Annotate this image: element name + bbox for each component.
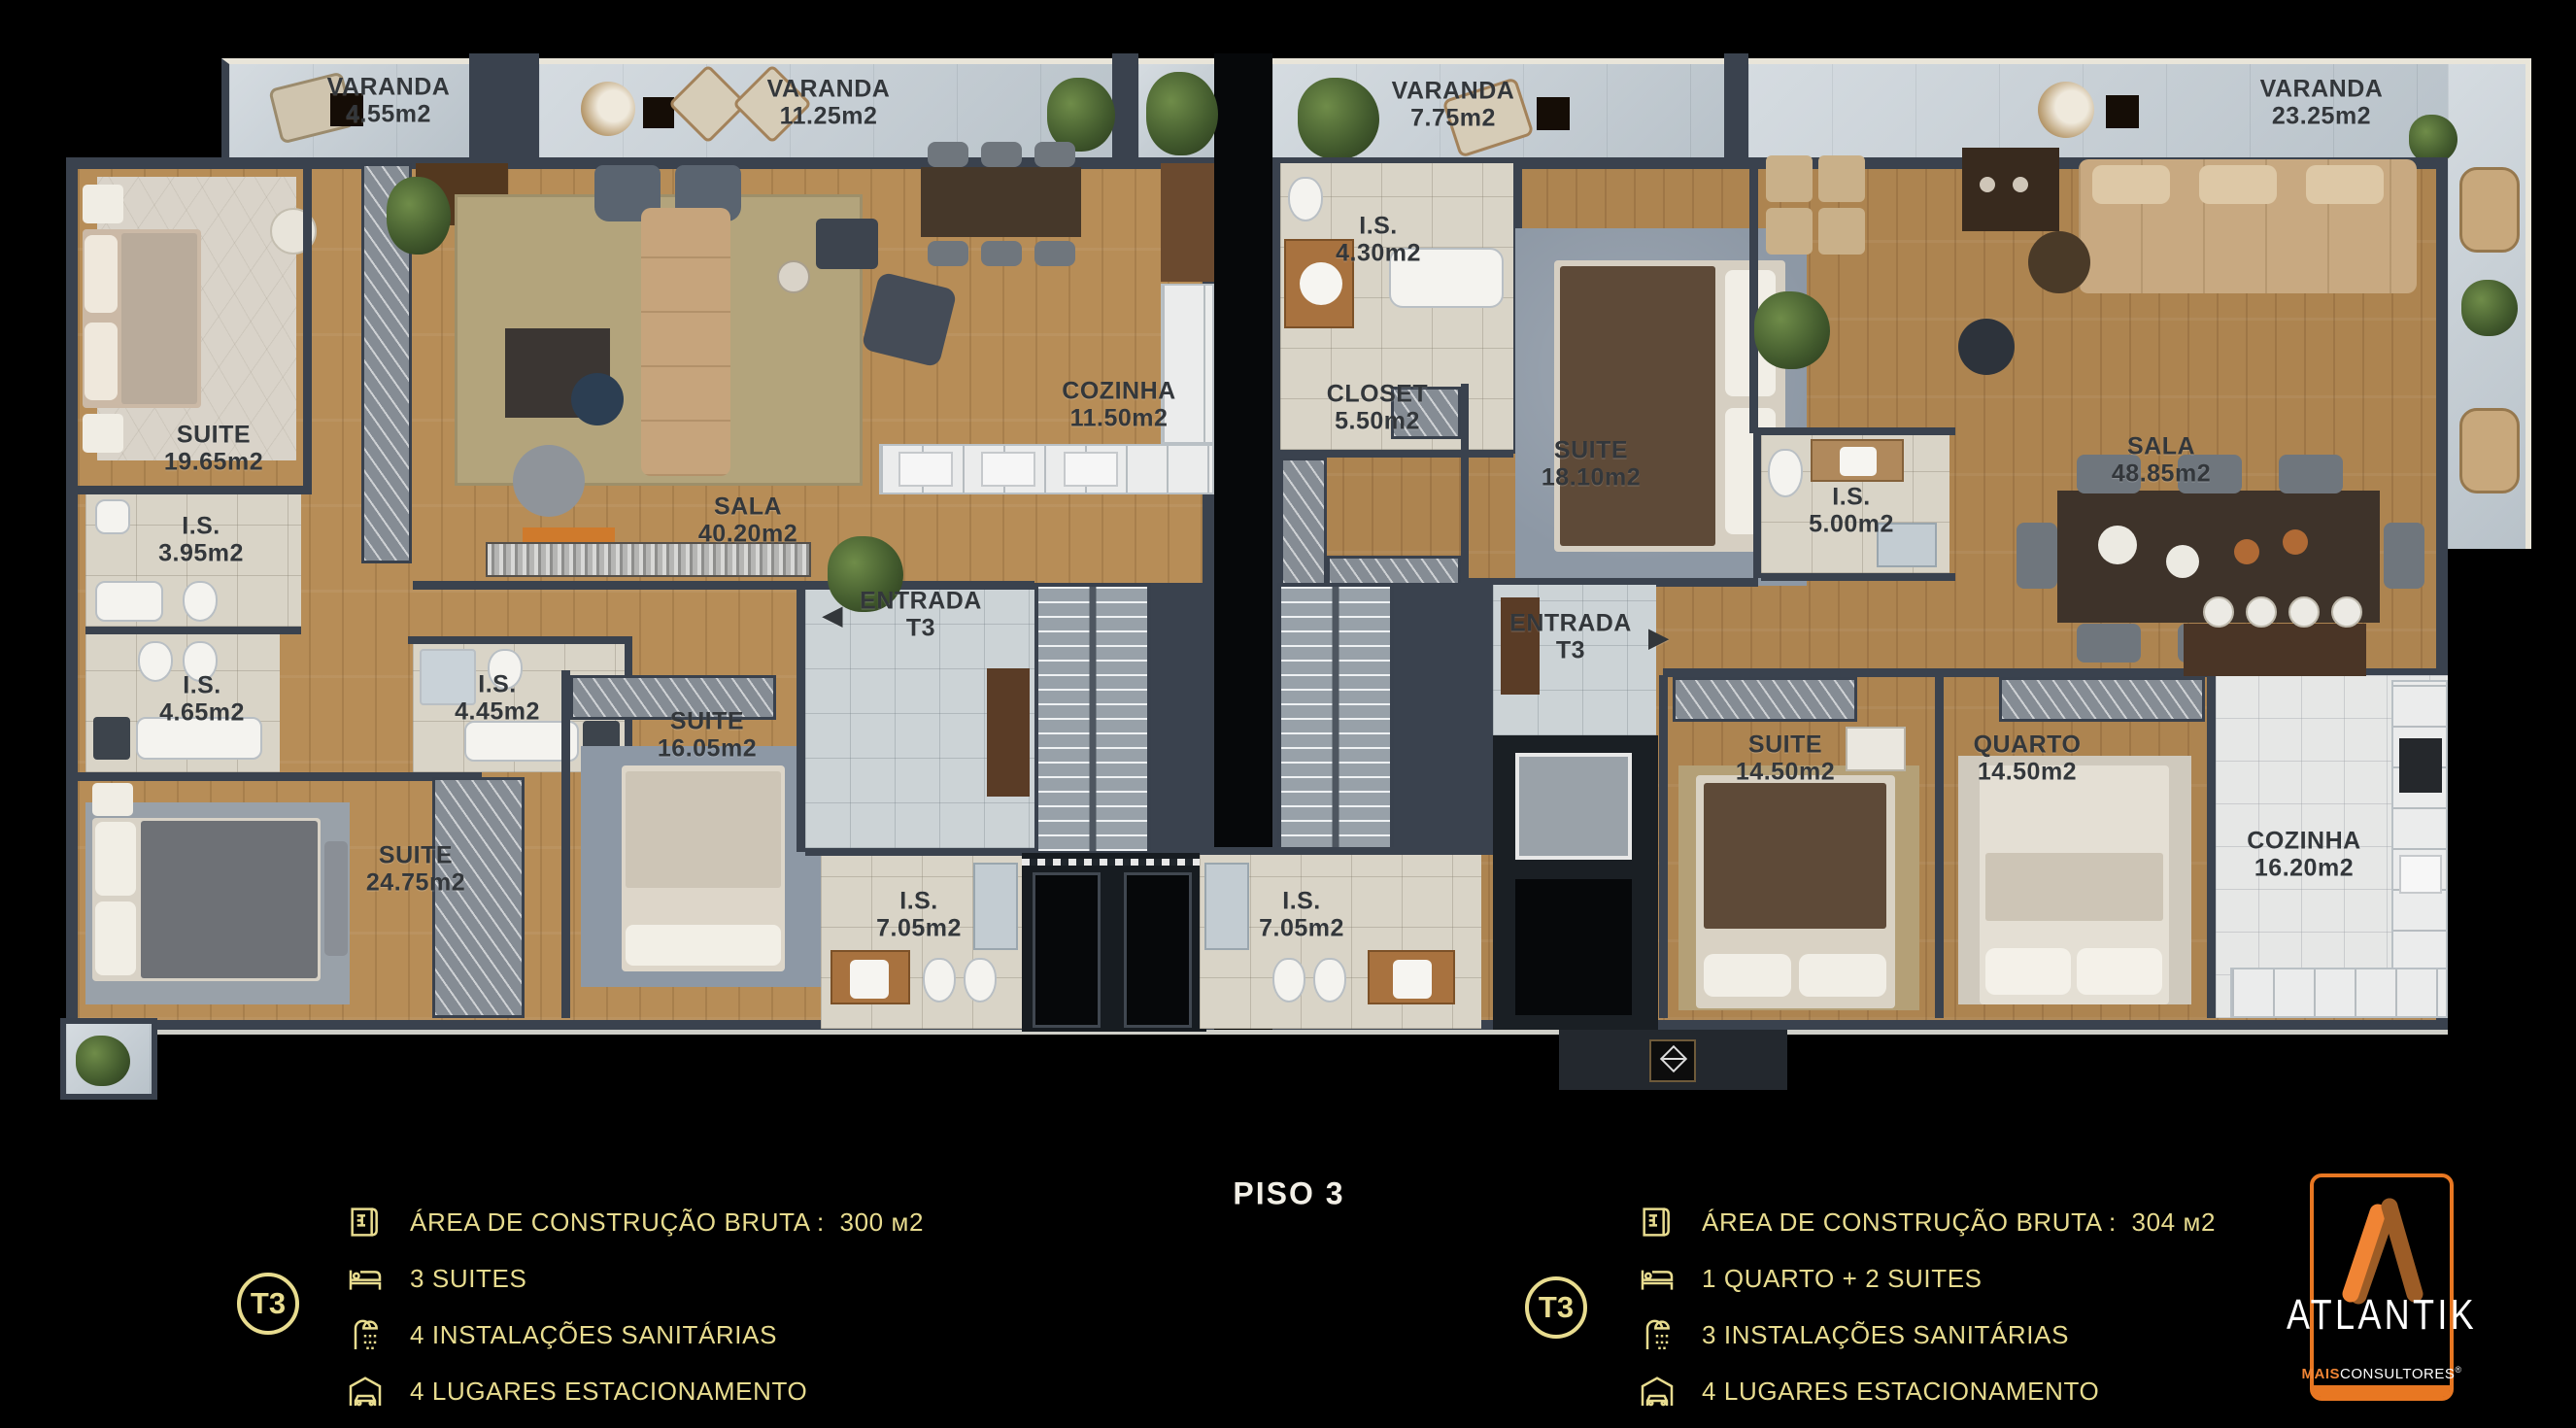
room-area: T3 (1556, 637, 1585, 664)
room-name: SALA (714, 494, 782, 522)
blanket (1704, 783, 1886, 929)
stool (2288, 596, 2320, 628)
vanity (1811, 439, 1904, 482)
wall (1151, 583, 1214, 860)
legend-right: ÁREA DE CONSTRUÇÃO BRUTA : 304 м2 1 QUAR… (1638, 1201, 2216, 1412)
room-area: 11.25m2 (780, 103, 878, 130)
pillow (1985, 948, 2071, 995)
legend-row-sanitary: 4 INSTALAÇÕES SANITÁRIAS (346, 1313, 924, 1356)
laundry-unit (93, 717, 130, 760)
atlantik-a-icon (2329, 1191, 2434, 1308)
room-area: 24.75m2 (366, 869, 465, 897)
pillow (95, 901, 136, 975)
room-name: ENTRADA (860, 589, 982, 616)
blueprint-icon (1638, 1203, 1677, 1241)
room-area: 4.55m2 (346, 101, 431, 128)
core-shaft (1214, 157, 1272, 855)
room-area: 48.85m2 (2112, 460, 2211, 488)
blanket (1560, 266, 1715, 546)
room-label-entrada-2: ▶ENTRADAT3 (1509, 611, 1632, 664)
sofa (641, 208, 730, 476)
room-area: T3 (906, 615, 935, 642)
wall (76, 772, 482, 781)
bidet (1313, 958, 1346, 1003)
room-label-is-705-left: I.S.7.05m2 (876, 889, 962, 942)
room-area: 19.65m2 (164, 449, 263, 476)
maisconsultores-label: MAISCONSULTORES® (2302, 1365, 2462, 1382)
room-area: 23.25m2 (2272, 103, 2371, 130)
room-area: 40.20m2 (698, 521, 797, 548)
shower-icon (346, 1315, 385, 1354)
room-area: 7.75m2 (1410, 105, 1496, 132)
pillow (95, 822, 136, 896)
room-area: 4.30m2 (1336, 240, 1421, 267)
pillow (2092, 165, 2170, 204)
room-label-suite-16: SUITE16.05m2 (658, 709, 757, 763)
room-area: 5.00m2 (1809, 511, 1894, 538)
bench (324, 841, 348, 956)
wall (1761, 573, 1955, 581)
wall (2207, 675, 2216, 1018)
bed (1696, 775, 1895, 1008)
sofa (2079, 159, 2417, 293)
dining-chair (1034, 241, 1075, 266)
room-label-varanda-2: VARANDA11.25m2 (767, 77, 891, 130)
elevator-shaft (1515, 879, 1632, 1015)
basin (850, 960, 889, 999)
room-area: 5.50m2 (1335, 408, 1420, 435)
elevator (1033, 872, 1101, 1028)
cooktop (898, 452, 953, 487)
bed-icon (1638, 1259, 1677, 1298)
sink (2399, 855, 2442, 894)
vanity (830, 950, 910, 1004)
shelf (523, 527, 615, 542)
pillow (85, 235, 118, 313)
counter-module (1064, 452, 1118, 487)
room-name: VARANDA (1392, 79, 1515, 106)
room-area: 3.95m2 (158, 540, 244, 567)
bottom-core-stub (1559, 1030, 1787, 1090)
room-name: QUARTO (1974, 732, 2082, 760)
bowl (2283, 529, 2308, 555)
room-label-sala-1: SALA40.20m2 (698, 494, 797, 548)
room-area: 11.50m2 (1070, 405, 1169, 432)
floor-cushion (1818, 208, 1865, 255)
room-label-quarto: QUARTO14.50m2 (1974, 732, 2082, 786)
wall (76, 486, 312, 494)
side-table (2028, 231, 2090, 293)
wall (1280, 450, 1513, 458)
room-label-suite-24: SUITE24.75m2 (366, 843, 465, 897)
nightstand (83, 185, 123, 223)
floor-plan-screen: VARANDA4.55m2 VARANDA11.25m2 VARANDA7.75… (0, 0, 2576, 1428)
dining-chair (2384, 523, 2424, 589)
wall (797, 588, 805, 852)
decor-dot (2013, 177, 2028, 192)
room-name: SUITE (177, 423, 251, 450)
room-name: COZINHA (1062, 379, 1175, 406)
coffee-table (2106, 95, 2139, 128)
legend-text: 3 SUITES (410, 1264, 526, 1294)
room-area: 7.05m2 (1259, 915, 1344, 942)
oven (2399, 738, 2442, 793)
plate (2098, 526, 2137, 564)
sink (95, 499, 130, 534)
room-label-entrada-1: ◀ENTRADAT3 (860, 589, 982, 642)
bowl (2234, 539, 2259, 564)
legend-row-suites: 3 SUITES (346, 1257, 924, 1300)
elevator (1124, 872, 1192, 1028)
room-name: SUITE (379, 843, 453, 870)
toilet (183, 581, 218, 622)
wall (1394, 583, 1486, 855)
room-name: SUITE (1748, 732, 1822, 760)
kitchen-counter (2230, 968, 2448, 1018)
legend-row-sanitary: 3 INSTALAÇÕES SANITÁRIAS (1638, 1313, 2216, 1356)
wall (1659, 675, 1668, 1018)
logo-orange-bar (2314, 1385, 2450, 1397)
wall (408, 636, 631, 644)
room-label-suite-14: SUITE14.50m2 (1736, 732, 1835, 786)
vanity (95, 581, 163, 622)
desk (1846, 727, 1906, 771)
shower-icon (1638, 1315, 1677, 1354)
pillow (2077, 948, 2162, 995)
dining-table (921, 167, 1081, 237)
wardrobe (1999, 677, 2205, 722)
lounge-chair (2459, 408, 2520, 493)
legend-text: 4 LUGARES ESTACIONAMENTO (1702, 1377, 2099, 1407)
room-area: 4.45m2 (455, 698, 540, 726)
t3-badge-right: T3 (1525, 1276, 1587, 1339)
entrada-arrow-icon: ◀ (823, 601, 843, 629)
wardrobe (432, 777, 525, 1018)
wall (1461, 384, 1469, 610)
ottoman (816, 219, 878, 269)
pouf (513, 445, 585, 517)
room-label-is-395: I.S.3.95m2 (158, 514, 244, 567)
room-area: 18.10m2 (1542, 464, 1641, 492)
room-area: 14.50m2 (1978, 759, 2077, 786)
room-label-varanda-4: VARANDA23.25m2 (2260, 77, 2384, 130)
bidet (964, 958, 997, 1003)
garage-car-icon (346, 1372, 385, 1411)
bar-cabinet (1962, 148, 2059, 231)
dining-chair (2017, 523, 2057, 589)
room-label-closet: CLOSET5.50m2 (1327, 382, 1428, 435)
plant (2461, 280, 2518, 336)
nightstand (92, 783, 133, 816)
basin (1840, 447, 1877, 476)
wall (1112, 53, 1138, 162)
blanket (626, 771, 781, 888)
room-name: CLOSET (1327, 382, 1428, 409)
wall (1753, 427, 1955, 435)
room-name: I.S. (183, 673, 221, 700)
legend-text: ÁREA DE CONSTRUÇÃO BRUTA : 300 м2 (410, 1207, 924, 1238)
pillow (1799, 954, 1886, 997)
room-name: I.S. (182, 514, 220, 541)
bed (1980, 765, 2169, 1004)
room-name: I.S. (1282, 889, 1321, 916)
floor-cushion (1818, 155, 1865, 202)
room-label-sala-2: SALA48.85m2 (2112, 434, 2211, 488)
room-name: I.S. (478, 672, 517, 699)
wall (1753, 427, 1761, 578)
toilet (1288, 177, 1323, 221)
room-name: VARANDA (2260, 77, 2384, 104)
room-name: COZINHA (2247, 829, 2360, 856)
wall (1214, 53, 1272, 162)
plant (1047, 78, 1115, 152)
plant (387, 177, 451, 255)
wardrobe (1673, 677, 1857, 722)
room-area: 7.05m2 (876, 915, 962, 942)
wall (303, 157, 312, 493)
shower (973, 863, 1018, 950)
legend-row-parking: 4 LUGARES ESTACIONAMENTO (1638, 1370, 2216, 1412)
fridge-cabinet (1161, 163, 1214, 282)
entrada-arrow-icon: ▶ (1648, 624, 1669, 652)
plate (2166, 545, 2199, 578)
t3-badge-left: T3 (237, 1273, 299, 1335)
plant (1298, 78, 1379, 159)
wall (85, 627, 301, 634)
elevator-car (1515, 753, 1632, 860)
bed-icon (346, 1259, 385, 1298)
room-name: I.S. (1832, 485, 1871, 512)
elevator-lobby (1493, 735, 1658, 1030)
room-label-varanda-1: VARANDA4.55m2 (327, 75, 451, 128)
toilet (1768, 449, 1803, 497)
coffee-table (643, 97, 674, 128)
round-rug (1958, 319, 2015, 375)
legend-text: 1 QUARTO + 2 SUITES (1702, 1264, 1983, 1294)
wall (1935, 675, 1944, 1018)
room-label-cozinha-1: COZINHA11.50m2 (1062, 379, 1175, 432)
room-label-is-465: I.S.4.65m2 (159, 673, 245, 727)
room-area: 16.20m2 (2254, 855, 2354, 882)
room-label-is-705-right: I.S.7.05m2 (1259, 889, 1344, 942)
blanket (1985, 853, 2163, 921)
side-table (777, 260, 810, 293)
room-area: 4.65m2 (159, 699, 245, 727)
wall (805, 848, 1036, 856)
dining-chair (981, 241, 1022, 266)
tray (571, 373, 624, 425)
legend-text: 4 LUGARES ESTACIONAMENTO (410, 1377, 807, 1407)
bed (92, 818, 321, 981)
wall (469, 53, 539, 162)
wall (561, 670, 570, 1018)
room-label-suite-18: SUITE18.10m2 (1542, 438, 1641, 492)
console-table (987, 668, 1030, 797)
blanket (141, 821, 318, 978)
room-area: 16.05m2 (658, 735, 757, 763)
lounge-chair (2459, 167, 2520, 253)
room-name: VARANDA (767, 77, 891, 104)
room-name: SUITE (1554, 438, 1628, 465)
sink (981, 452, 1035, 487)
atlantik-wordmark: ATLANTIK (2287, 1291, 2477, 1340)
wall (1749, 157, 1758, 433)
garage-car-icon (1638, 1372, 1677, 1411)
kitchen-counter (2391, 680, 2448, 1015)
plant (1146, 72, 1218, 155)
wall (1724, 53, 1748, 162)
room-label-varanda-3: VARANDA7.75m2 (1392, 79, 1515, 132)
dining-chair (2279, 455, 2343, 493)
pillow (626, 925, 781, 966)
vanity (1368, 950, 1455, 1004)
coffee-table (1537, 97, 1570, 130)
pillow (2199, 165, 2277, 204)
legend-text: ÁREA DE CONSTRUÇÃO BRUTA : 304 м2 (1702, 1207, 2216, 1238)
toilet (923, 958, 956, 1003)
decor-dot (1980, 177, 1995, 192)
dining-chair (928, 241, 968, 266)
wall (1200, 847, 1481, 855)
basin (1300, 262, 1342, 305)
shower (1204, 863, 1249, 950)
plant (2409, 115, 2457, 163)
staircase (1034, 583, 1151, 855)
toilet (1272, 958, 1305, 1003)
room-name: VARANDA (327, 75, 451, 102)
plant (1754, 291, 1830, 369)
page-title: PISO 3 (1233, 1176, 1344, 1212)
room-name: ENTRADA (1509, 611, 1632, 638)
dining-chair (2077, 624, 2141, 663)
room-name: I.S. (1359, 214, 1398, 241)
outer-paving-line (66, 1030, 2448, 1035)
basin (1393, 960, 1432, 999)
floor-cushion (1766, 155, 1813, 202)
floor-cushion (1766, 208, 1813, 255)
dining-chair (928, 142, 968, 167)
room-label-is-430: I.S.4.30m2 (1336, 214, 1421, 267)
legend-row-area: ÁREA DE CONSTRUÇÃO BRUTA : 300 м2 (346, 1201, 924, 1243)
room-label-is-445: I.S.4.45m2 (455, 672, 540, 726)
pillow (85, 323, 118, 400)
legend-row-parking: 4 LUGARES ESTACIONAMENTO (346, 1370, 924, 1412)
room-name: SALA (2127, 434, 2195, 461)
shaft-ticks (1022, 859, 1206, 866)
stool (2203, 596, 2234, 628)
room-label-is-500: I.S.5.00m2 (1809, 485, 1894, 538)
plant (76, 1036, 130, 1086)
dining-chair (1034, 142, 1075, 167)
legend-row-area: ÁREA DE CONSTRUÇÃO BRUTA : 304 м2 (1638, 1201, 2216, 1243)
room-area: 14.50m2 (1736, 759, 1835, 786)
bed (622, 765, 785, 971)
pillow (2306, 165, 2384, 204)
hanging-chair (2038, 82, 2094, 138)
legend-row-suites: 1 QUARTO + 2 SUITES (1638, 1257, 2216, 1300)
room-label-cozinha-2: COZINHA16.20m2 (2247, 829, 2360, 882)
room-label-suite-19: SUITE19.65m2 (164, 423, 263, 476)
room-name: I.S. (899, 889, 938, 916)
bed (83, 229, 201, 408)
blanket (121, 233, 197, 404)
pillow (1704, 954, 1791, 997)
legend-text: 3 INSTALAÇÕES SANITÁRIAS (1702, 1320, 2069, 1350)
hanging-chair (581, 82, 635, 136)
legend-left: ÁREA DE CONSTRUÇÃO BRUTA : 300 м2 3 SUIT… (346, 1201, 924, 1412)
blueprint-icon (346, 1203, 385, 1241)
dining-chair (981, 142, 1022, 167)
nightstand (83, 414, 123, 453)
kitchen-island (2184, 624, 2366, 676)
legend-text: 4 INSTALAÇÕES SANITÁRIAS (410, 1320, 777, 1350)
stool (2331, 596, 2362, 628)
stool (2246, 596, 2277, 628)
staircase (1277, 583, 1394, 855)
room-name: SUITE (670, 709, 744, 736)
